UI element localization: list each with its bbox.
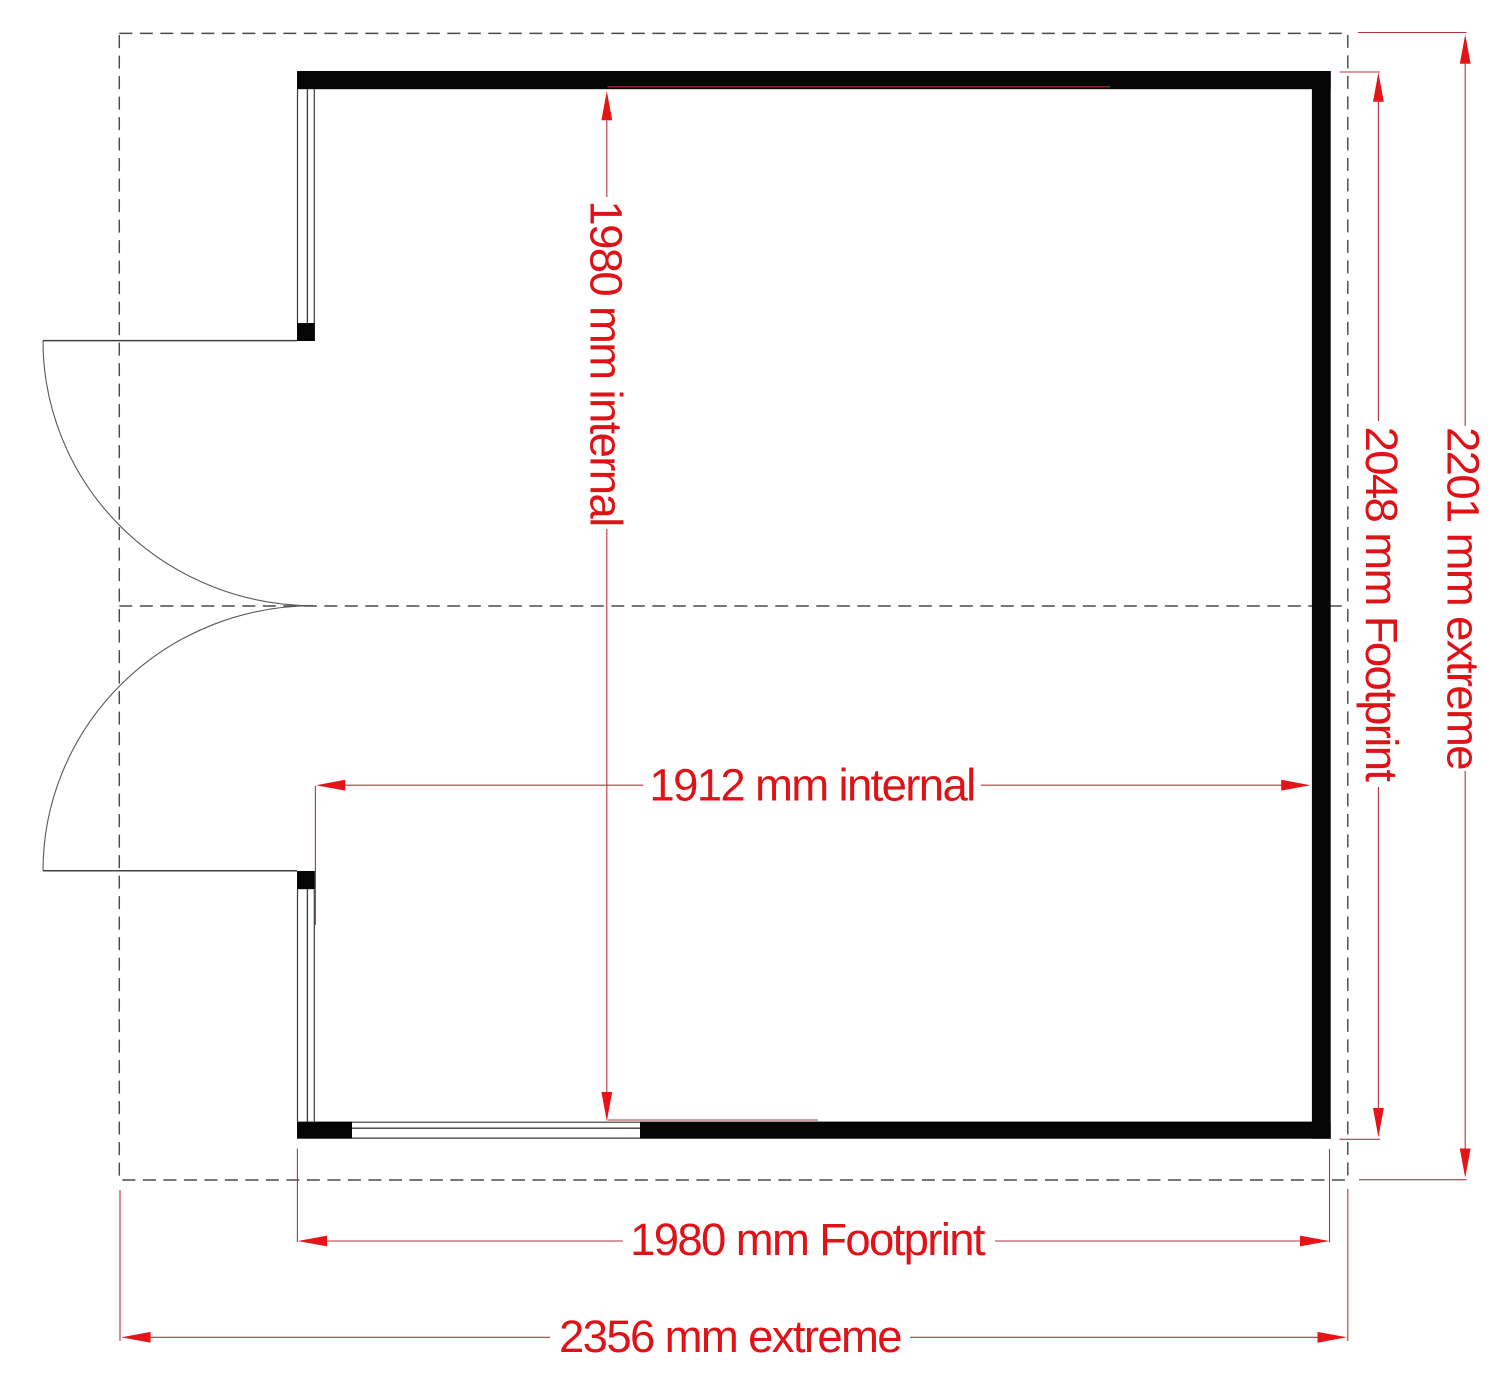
svg-text:2048 mm Footprint: 2048 mm Footprint <box>1356 427 1407 783</box>
svg-text:1980 mm internal: 1980 mm internal <box>580 200 631 525</box>
svg-text:2356 mm extreme: 2356 mm extreme <box>559 1311 901 1362</box>
svg-text:2201 mm extreme: 2201 mm extreme <box>1438 427 1489 769</box>
svg-text:1912 mm internal: 1912 mm internal <box>649 760 974 811</box>
svg-text:1980 mm Footprint: 1980 mm Footprint <box>630 1214 986 1265</box>
